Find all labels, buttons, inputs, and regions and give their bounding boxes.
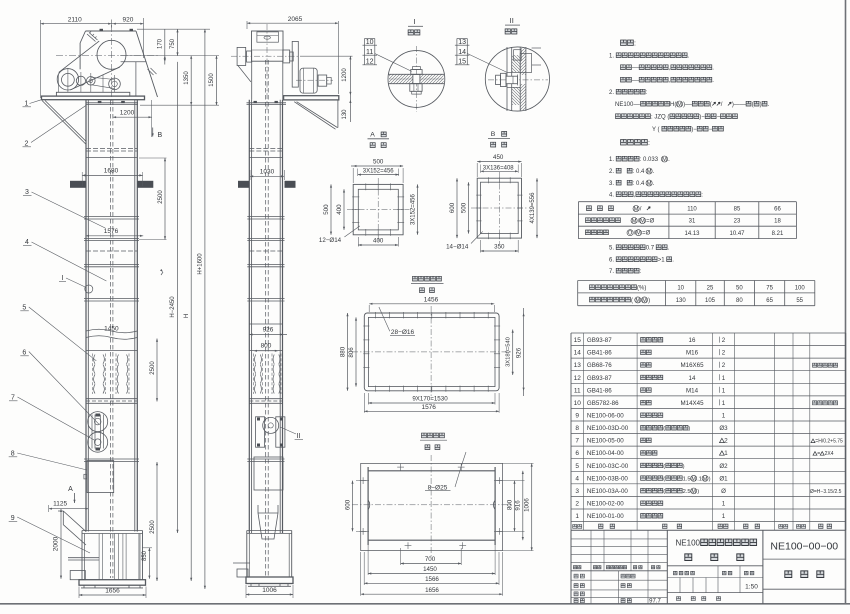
svg-text:GB5782-86: GB5782-86 bbox=[587, 400, 619, 407]
svg-text:800: 800 bbox=[506, 499, 513, 510]
svg-text:M14X45: M14X45 bbox=[680, 400, 704, 407]
svg-text:I: I bbox=[62, 275, 64, 282]
svg-text:1: 1 bbox=[722, 375, 726, 382]
svg-text:800: 800 bbox=[261, 343, 272, 350]
svg-text:600: 600 bbox=[344, 499, 351, 510]
svg-text:2: 2 bbox=[724, 438, 728, 445]
svg-text:3X152=456: 3X152=456 bbox=[411, 194, 417, 226]
svg-text:NE100: NE100 bbox=[676, 539, 701, 548]
svg-text:1: 1 bbox=[722, 413, 726, 420]
svg-text:>1: >1 bbox=[658, 258, 666, 264]
svg-text:8−Ø25: 8−Ø25 bbox=[428, 484, 448, 491]
svg-text:600: 600 bbox=[449, 202, 456, 213]
svg-text:4: 4 bbox=[575, 475, 579, 482]
svg-text:=Ø: =Ø bbox=[642, 231, 651, 237]
svg-text:50: 50 bbox=[736, 286, 743, 292]
svg-text:55: 55 bbox=[796, 298, 803, 304]
svg-text:1656: 1656 bbox=[425, 587, 439, 594]
svg-text:(: ( bbox=[663, 476, 665, 482]
svg-text:31: 31 bbox=[689, 219, 696, 225]
svg-text:130: 130 bbox=[342, 109, 348, 120]
svg-text:500: 500 bbox=[373, 159, 384, 166]
svg-text:1: 1 bbox=[722, 501, 726, 508]
svg-text:2000: 2000 bbox=[53, 536, 60, 551]
svg-text:400: 400 bbox=[373, 238, 384, 245]
svg-text::: : bbox=[634, 41, 636, 48]
svg-text:2X4: 2X4 bbox=[825, 451, 834, 457]
svg-text:920: 920 bbox=[122, 16, 133, 23]
svg-text:7: 7 bbox=[11, 395, 15, 402]
svg-text:)——: )—— bbox=[732, 102, 746, 108]
svg-text:1450: 1450 bbox=[423, 566, 437, 573]
svg-text:): ) bbox=[648, 298, 650, 304]
svg-text:1350: 1350 bbox=[184, 71, 190, 85]
svg-text:1.: 1. bbox=[609, 157, 614, 163]
svg-text:28−Ø16: 28−Ø16 bbox=[391, 329, 415, 336]
svg-text:2500: 2500 bbox=[150, 361, 156, 375]
svg-text:85: 85 bbox=[734, 207, 741, 213]
svg-text:3X152=456: 3X152=456 bbox=[363, 169, 395, 175]
svg-text:B: B bbox=[158, 132, 163, 139]
svg-text:B: B bbox=[491, 131, 496, 138]
svg-text:10: 10 bbox=[574, 400, 582, 407]
svg-text:14: 14 bbox=[458, 49, 466, 56]
svg-text:(%): (%) bbox=[637, 286, 646, 292]
svg-text:NE100-06-00: NE100-06-00 bbox=[587, 413, 624, 420]
svg-text:NE100-03D-00: NE100-03D-00 bbox=[587, 425, 629, 432]
svg-text:0.7: 0.7 bbox=[646, 246, 655, 252]
svg-text:500: 500 bbox=[461, 202, 468, 213]
svg-text:Y (: Y ( bbox=[652, 127, 660, 133]
svg-text:A: A bbox=[370, 132, 375, 139]
svg-text:II: II bbox=[510, 16, 514, 25]
svg-text:1576: 1576 bbox=[421, 404, 436, 411]
svg-text:2065: 2065 bbox=[288, 16, 303, 23]
svg-text:3X136=408: 3X136=408 bbox=[483, 165, 515, 171]
svg-text:): ) bbox=[688, 426, 690, 432]
svg-text:3: 3 bbox=[25, 189, 29, 196]
svg-text:: 0.4: : 0.4 bbox=[633, 169, 645, 175]
svg-text:1006: 1006 bbox=[262, 587, 277, 594]
svg-text:8: 8 bbox=[11, 451, 15, 458]
svg-text:9: 9 bbox=[11, 515, 15, 522]
svg-text:1566: 1566 bbox=[425, 576, 439, 583]
svg-text:4.: 4. bbox=[609, 193, 614, 199]
svg-text:GB93-87: GB93-87 bbox=[587, 375, 612, 382]
svg-text:750: 750 bbox=[170, 38, 176, 49]
svg-text:3X180=540: 3X180=540 bbox=[506, 337, 512, 367]
svg-text:11: 11 bbox=[366, 49, 373, 56]
svg-text:15: 15 bbox=[574, 337, 582, 344]
svg-text:170: 170 bbox=[158, 38, 164, 49]
svg-text:(: ( bbox=[752, 102, 754, 108]
svg-text:9: 9 bbox=[575, 413, 579, 420]
svg-text:=Ø: =Ø bbox=[646, 219, 655, 225]
svg-text:16: 16 bbox=[689, 337, 696, 344]
svg-text:1: 1 bbox=[722, 513, 726, 520]
svg-text:−: − bbox=[717, 115, 721, 121]
svg-text:97.7: 97.7 bbox=[649, 599, 661, 605]
svg-text:11: 11 bbox=[574, 387, 581, 394]
svg-text:1125: 1125 bbox=[53, 501, 67, 508]
svg-text:10.47: 10.47 bbox=[729, 231, 745, 237]
svg-text:I: I bbox=[413, 17, 415, 26]
svg-text:−: − bbox=[709, 127, 713, 133]
svg-text:): ) bbox=[760, 102, 762, 108]
svg-text:6: 6 bbox=[575, 450, 579, 457]
svg-text:350: 350 bbox=[494, 244, 505, 251]
svg-text:2: 2 bbox=[25, 141, 29, 148]
svg-text:H: H bbox=[184, 314, 190, 318]
svg-text:1450: 1450 bbox=[104, 326, 119, 333]
svg-text:3.: 3. bbox=[609, 181, 614, 187]
svg-text:NE100-03A-00: NE100-03A-00 bbox=[587, 488, 628, 495]
svg-text:): ) bbox=[683, 464, 685, 470]
svg-text:1576: 1576 bbox=[104, 228, 119, 235]
svg-text:10: 10 bbox=[366, 39, 374, 46]
svg-text:65: 65 bbox=[766, 298, 773, 304]
svg-text:M14: M14 bbox=[686, 387, 699, 394]
svg-text:1: 1 bbox=[575, 513, 579, 520]
svg-text:Ø2: Ø2 bbox=[719, 463, 728, 470]
svg-text:: 0.033: : 0.033 bbox=[640, 157, 659, 163]
svg-text:1.5: 1.5 bbox=[683, 476, 691, 482]
svg-text:1:50: 1:50 bbox=[745, 584, 758, 591]
svg-text:1: 1 bbox=[25, 101, 29, 108]
svg-text:2: 2 bbox=[575, 501, 579, 508]
svg-text:926: 926 bbox=[515, 347, 522, 358]
svg-text:130: 130 bbox=[676, 298, 687, 304]
svg-text:14: 14 bbox=[574, 350, 582, 357]
svg-text:700: 700 bbox=[425, 556, 436, 563]
svg-text:Ø1: Ø1 bbox=[719, 475, 728, 482]
svg-text:M16: M16 bbox=[686, 350, 699, 357]
svg-text:NE100-03B-00: NE100-03B-00 bbox=[587, 475, 628, 482]
svg-text:1200: 1200 bbox=[120, 110, 135, 117]
svg-text:2.: 2. bbox=[609, 90, 614, 96]
svg-text:: JZQ (: : JZQ ( bbox=[651, 115, 669, 121]
svg-text:105: 105 bbox=[705, 298, 716, 304]
svg-text:GB68-76: GB68-76 bbox=[587, 362, 612, 369]
svg-text:1.: 1. bbox=[609, 54, 614, 60]
svg-text:850: 850 bbox=[142, 550, 148, 561]
svg-text:1500: 1500 bbox=[209, 73, 215, 87]
svg-text:6: 6 bbox=[22, 350, 26, 357]
svg-text:GB41-86: GB41-86 bbox=[587, 350, 612, 357]
svg-text:(: ( bbox=[631, 298, 633, 304]
svg-text:14: 14 bbox=[689, 375, 696, 382]
svg-text:1: 1 bbox=[722, 387, 726, 394]
svg-text:GB93-87: GB93-87 bbox=[587, 337, 612, 344]
svg-text:Ø3: Ø3 bbox=[719, 425, 728, 432]
svg-text:(: ( bbox=[663, 426, 665, 432]
svg-text:12−Ø14: 12−Ø14 bbox=[319, 237, 342, 244]
svg-text:2500: 2500 bbox=[150, 520, 156, 534]
svg-text:II: II bbox=[297, 433, 301, 440]
svg-text:10: 10 bbox=[677, 286, 684, 292]
svg-text:75: 75 bbox=[766, 286, 773, 292]
svg-text:5: 5 bbox=[22, 305, 26, 312]
svg-text:M16X65: M16X65 bbox=[680, 362, 704, 369]
svg-text:7: 7 bbox=[575, 438, 579, 445]
svg-text:1: 1 bbox=[722, 400, 726, 407]
svg-text:2.: 2. bbox=[609, 169, 614, 175]
svg-text:100: 100 bbox=[795, 286, 806, 292]
svg-text:2500: 2500 bbox=[158, 190, 164, 204]
svg-text:2110: 2110 bbox=[68, 16, 82, 23]
svg-text:)−: )− bbox=[691, 127, 697, 133]
svg-text:7.: 7. bbox=[609, 269, 614, 275]
svg-text:14−Ø14: 14−Ø14 bbox=[446, 243, 469, 250]
svg-text:806: 806 bbox=[348, 347, 355, 358]
svg-text:80: 80 bbox=[736, 298, 743, 304]
svg-text:=: = bbox=[817, 451, 820, 457]
svg-text:1680: 1680 bbox=[104, 168, 119, 175]
svg-text:450: 450 bbox=[493, 154, 504, 161]
svg-text:12: 12 bbox=[574, 375, 582, 382]
svg-text:926: 926 bbox=[263, 327, 274, 334]
svg-text:A: A bbox=[68, 486, 73, 493]
svg-text:2: 2 bbox=[722, 350, 726, 357]
svg-text:.1: .1 bbox=[697, 476, 702, 482]
svg-text:1456: 1456 bbox=[424, 296, 439, 303]
svg-text:NE100-01-00: NE100-01-00 bbox=[587, 513, 624, 520]
svg-text:500: 500 bbox=[323, 204, 330, 215]
svg-text:Ø=H−3.15/2.5: Ø=H−3.15/2.5 bbox=[810, 489, 842, 495]
svg-text:13: 13 bbox=[458, 39, 466, 46]
svg-text:12: 12 bbox=[366, 59, 374, 66]
svg-text:18: 18 bbox=[774, 219, 781, 225]
svg-text:8.21: 8.21 bbox=[772, 231, 784, 237]
svg-text:2: 2 bbox=[722, 337, 726, 344]
svg-text:1006: 1006 bbox=[524, 498, 531, 512]
svg-text:400: 400 bbox=[336, 204, 343, 215]
svg-text:)−: )− bbox=[699, 115, 705, 121]
svg-text::: : bbox=[648, 140, 650, 147]
svg-text:13: 13 bbox=[574, 362, 582, 369]
svg-text:880: 880 bbox=[339, 346, 346, 357]
svg-text:1200: 1200 bbox=[342, 68, 348, 82]
svg-text:2.5: 2.5 bbox=[683, 489, 691, 495]
svg-text:H+1600: H+1600 bbox=[198, 253, 204, 275]
svg-text:15: 15 bbox=[458, 59, 466, 66]
svg-text:): ) bbox=[709, 476, 711, 482]
svg-text:4X139=556: 4X139=556 bbox=[530, 192, 536, 224]
svg-text:4: 4 bbox=[25, 239, 29, 246]
svg-text:NE100-04-00: NE100-04-00 bbox=[587, 450, 624, 457]
svg-text:25: 25 bbox=[707, 286, 714, 292]
svg-text:9X170=1530: 9X170=1530 bbox=[412, 396, 448, 403]
svg-text:5: 5 bbox=[575, 463, 579, 470]
svg-text:GB41-86: GB41-86 bbox=[587, 387, 612, 394]
svg-text:1656: 1656 bbox=[105, 588, 120, 595]
svg-text:23: 23 bbox=[734, 219, 741, 225]
svg-text:NE100-05-00: NE100-05-00 bbox=[587, 438, 624, 445]
svg-text:H(: H( bbox=[670, 102, 676, 108]
svg-text:): ) bbox=[697, 489, 699, 495]
svg-text:5.: 5. bbox=[609, 246, 614, 252]
svg-text:2: 2 bbox=[722, 362, 726, 369]
svg-text:H−2450: H−2450 bbox=[170, 296, 176, 318]
svg-text:=H/0.2+5.75: =H/0.2+5.75 bbox=[815, 439, 843, 445]
svg-text:6.: 6. bbox=[609, 258, 614, 264]
svg-text:Ø: Ø bbox=[721, 488, 726, 495]
svg-text:3: 3 bbox=[575, 488, 579, 495]
svg-text:NE100−00−00: NE100−00−00 bbox=[770, 541, 838, 553]
svg-text:1: 1 bbox=[724, 450, 728, 457]
svg-text:(: ( bbox=[663, 464, 665, 470]
svg-text:(: ( bbox=[710, 102, 712, 108]
svg-text:1030: 1030 bbox=[260, 169, 275, 176]
svg-text:(: ( bbox=[663, 489, 665, 495]
svg-text:NE100-02-00: NE100-02-00 bbox=[587, 501, 624, 508]
svg-text:916: 916 bbox=[515, 500, 522, 511]
svg-text:110: 110 bbox=[687, 207, 697, 213]
svg-text:: 0.4: : 0.4 bbox=[633, 181, 645, 187]
svg-text:8: 8 bbox=[575, 425, 579, 432]
svg-text:NE100-03C-00: NE100-03C-00 bbox=[587, 463, 629, 470]
svg-text:14.13: 14.13 bbox=[684, 231, 700, 237]
svg-text:66: 66 bbox=[774, 207, 781, 213]
